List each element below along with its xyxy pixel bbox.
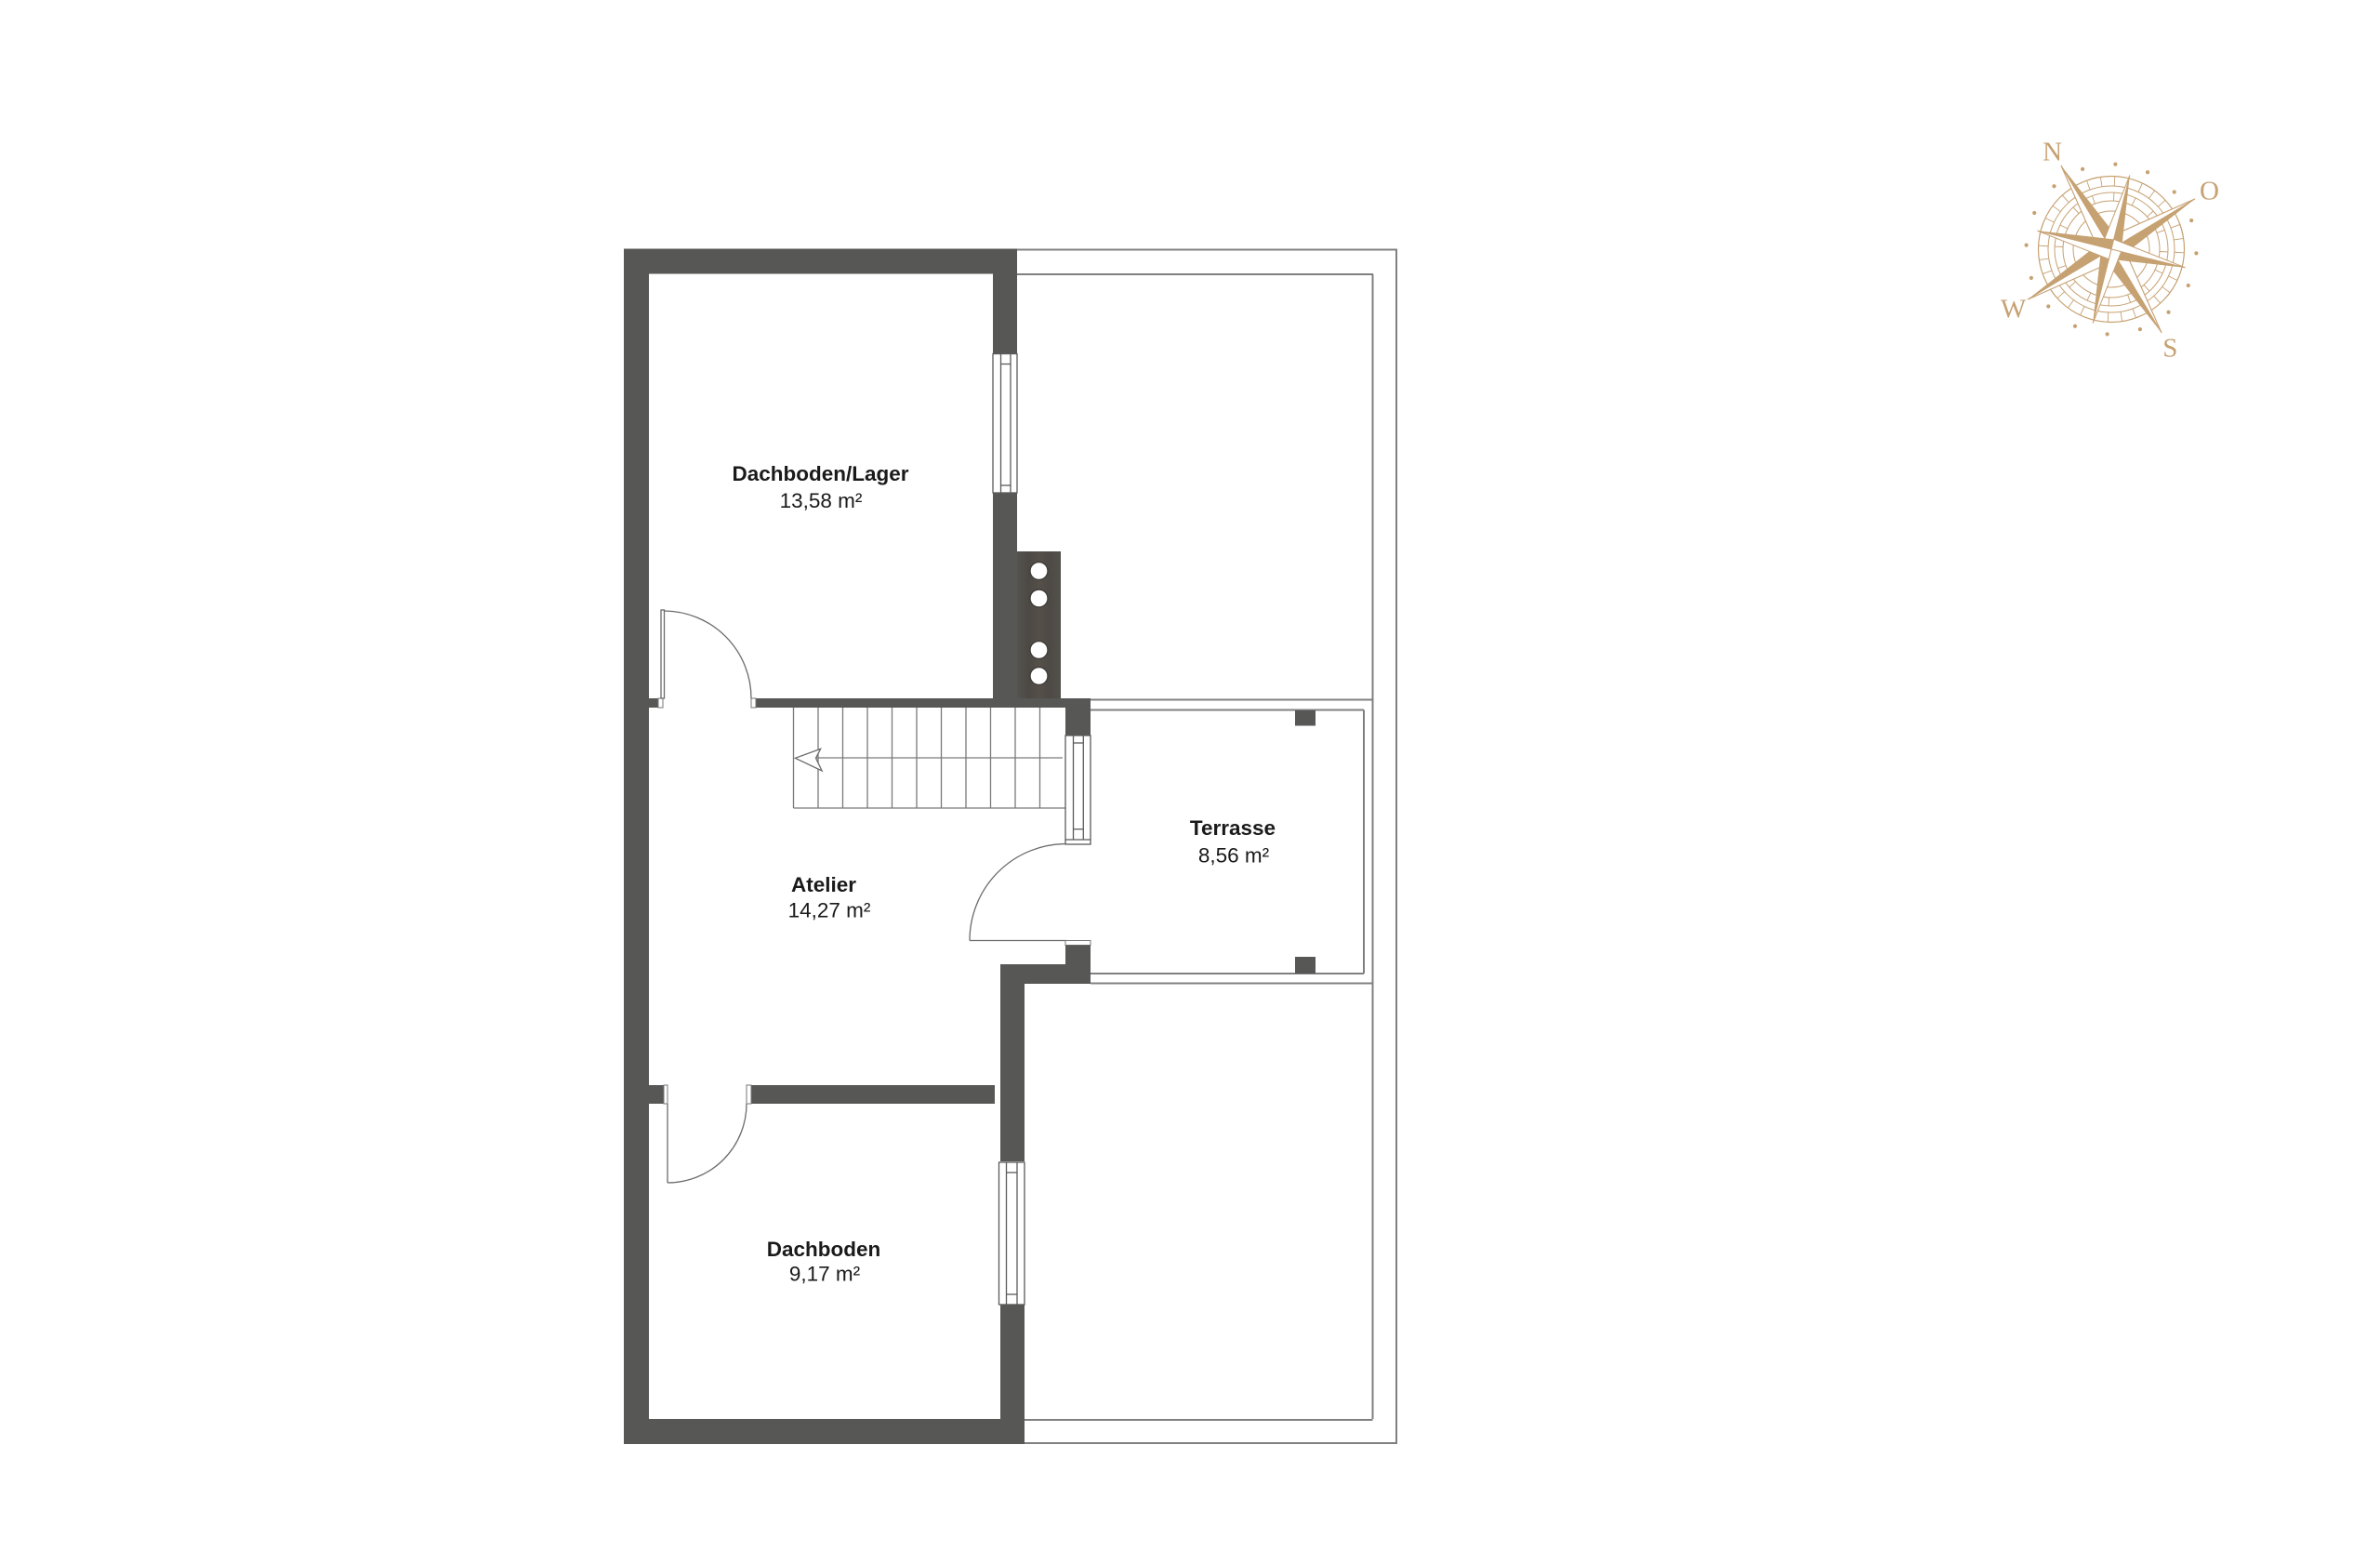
svg-text:Atelier: Atelier [791, 873, 856, 896]
svg-text:Terrasse: Terrasse [1190, 816, 1276, 840]
svg-text:Dachboden: Dachboden [767, 1238, 881, 1261]
svg-text:O: O [2200, 177, 2219, 206]
svg-text:8,56 m²: 8,56 m² [1198, 844, 1270, 868]
svg-text:S: S [2162, 333, 2177, 363]
svg-text:14,27 m²: 14,27 m² [788, 899, 871, 922]
svg-text:Dachboden/Lager: Dachboden/Lager [732, 462, 908, 485]
svg-text:9,17 m²: 9,17 m² [789, 1263, 861, 1286]
svg-text:W: W [2001, 294, 2027, 324]
svg-text:N: N [2043, 138, 2062, 167]
svg-text:13,58 m²: 13,58 m² [780, 489, 863, 512]
